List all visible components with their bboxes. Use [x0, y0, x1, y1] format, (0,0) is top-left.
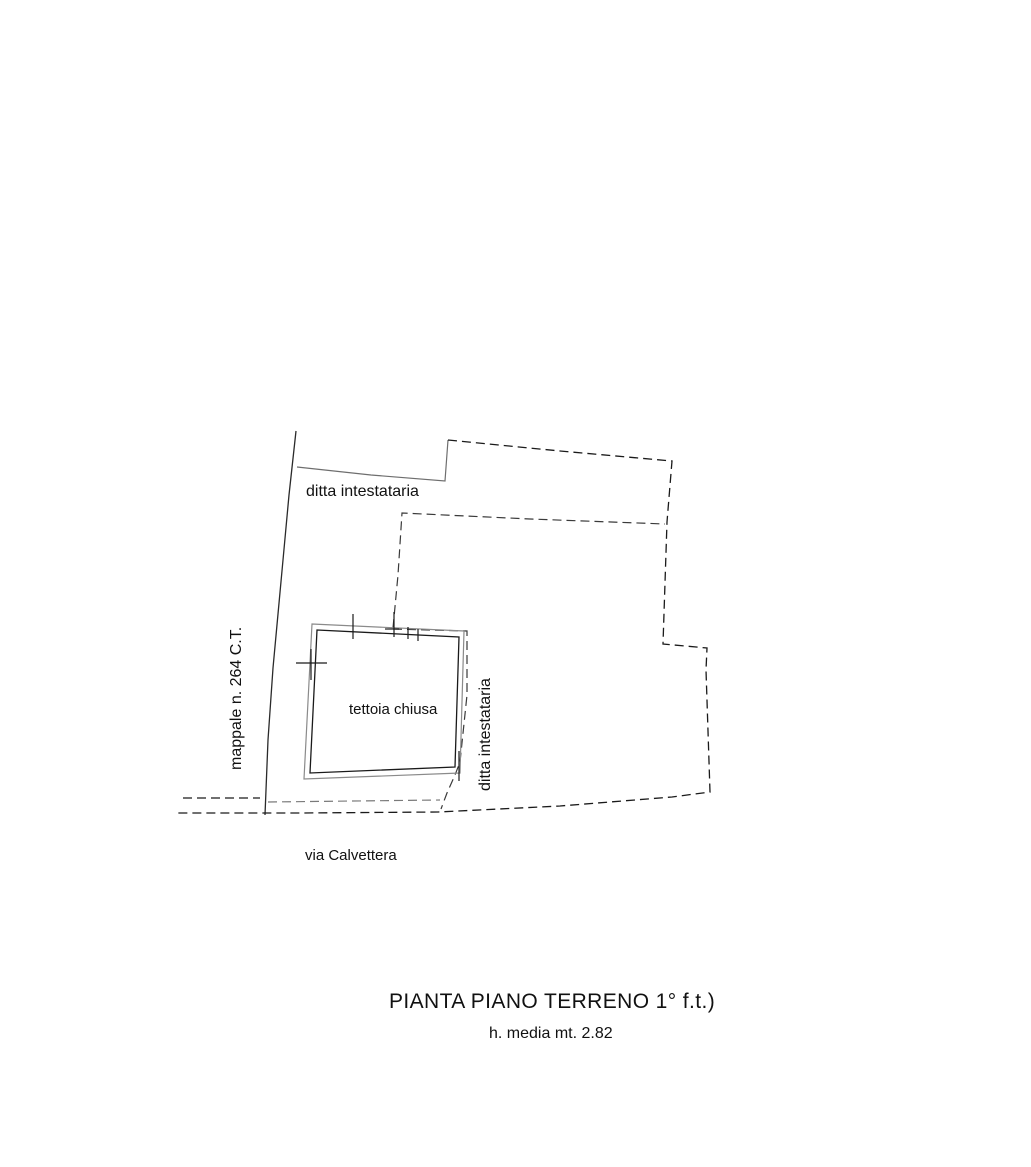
plan-title: PIANTA PIANO TERRENO 1° f.t.) — [389, 990, 715, 1014]
left-boundary-line — [265, 431, 296, 815]
mappale-parcel-label: mappale n. 264 C.T. — [228, 627, 246, 770]
cadastral-plan-page: ditta intestataria mappale n. 264 C.T. t… — [0, 0, 1031, 1167]
building-label: tettoia chiusa — [349, 701, 437, 718]
owner-parcel-label-right: ditta intestataria — [477, 678, 495, 791]
street-label: via Calvettera — [305, 847, 397, 864]
outer-parcel-dashed-boundary — [177, 440, 710, 813]
plan-subtitle: h. media mt. 2.82 — [489, 1025, 613, 1043]
owner-parcel-label-top: ditta intestataria — [306, 483, 419, 501]
survey-tick-marks — [296, 612, 459, 781]
top-fence-line — [297, 440, 448, 481]
inner-parcel-dashed-boundary — [393, 513, 665, 628]
street-dashed-line-middle — [268, 800, 440, 802]
